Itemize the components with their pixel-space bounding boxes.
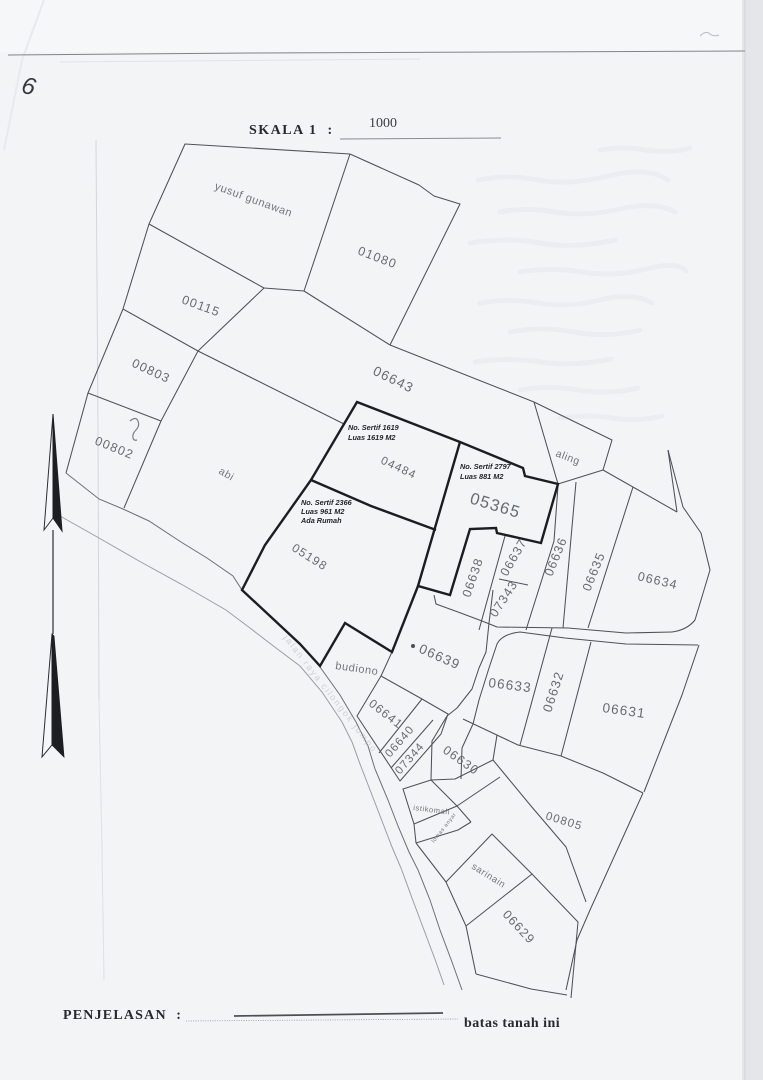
svg-text:SKALA 1 :: SKALA 1 : <box>249 123 334 138</box>
svg-text:PENJELASAN :: PENJELASAN : <box>63 1008 182 1023</box>
svg-text:Luas 961 M2: Luas 961 M2 <box>301 507 344 516</box>
svg-text:Ada Rumah: Ada Rumah <box>300 516 342 525</box>
svg-text:1000: 1000 <box>369 116 397 131</box>
svg-text:No. Sertif 2797: No. Sertif 2797 <box>460 462 512 471</box>
svg-text:Luas 1619 M2: Luas 1619 M2 <box>348 433 395 442</box>
svg-text:No. Sertif 2366: No. Sertif 2366 <box>301 498 353 507</box>
svg-text:No. Sertif 1619: No. Sertif 1619 <box>348 423 400 432</box>
svg-text:Luas 881 M2: Luas 881 M2 <box>460 472 503 481</box>
svg-text:batas tanah ini: batas tanah ini <box>464 1016 560 1031</box>
